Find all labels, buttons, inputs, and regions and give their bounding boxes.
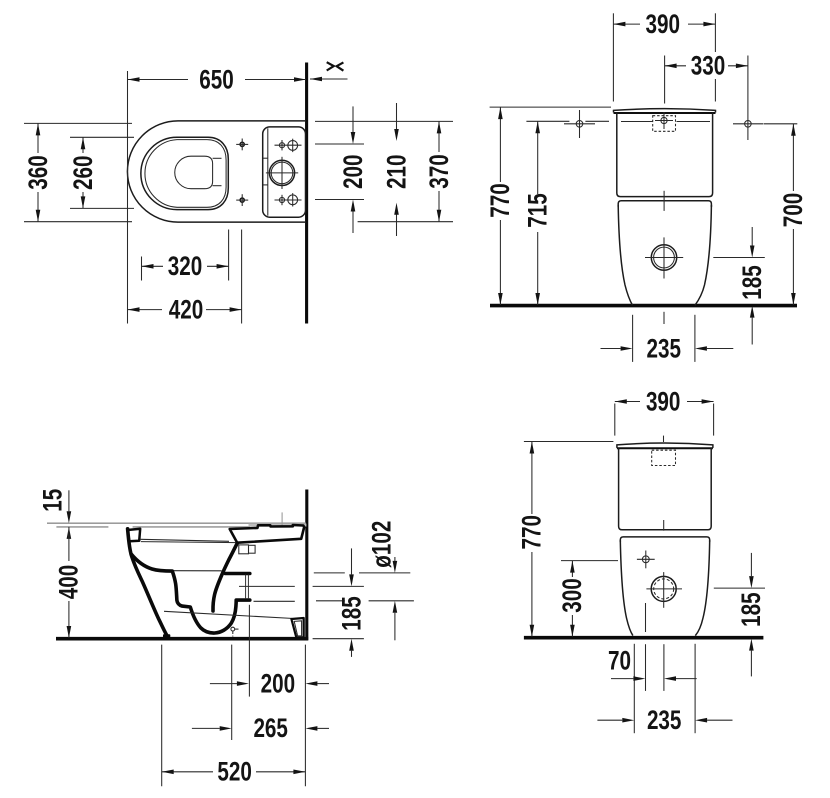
svg-text:715: 715 — [522, 193, 553, 228]
svg-text:770: 770 — [484, 183, 515, 218]
svg-text:390: 390 — [646, 385, 681, 416]
svg-text:370: 370 — [423, 154, 454, 189]
svg-text:260: 260 — [67, 156, 98, 191]
svg-text:420: 420 — [169, 293, 204, 324]
svg-text:ø102: ø102 — [366, 521, 397, 568]
svg-text:235: 235 — [647, 704, 682, 735]
svg-text:520: 520 — [217, 756, 252, 787]
svg-text:300: 300 — [556, 578, 587, 613]
svg-text:185: 185 — [335, 596, 366, 631]
svg-text:330: 330 — [691, 50, 726, 81]
svg-text:210: 210 — [380, 154, 411, 189]
svg-text:360: 360 — [22, 155, 53, 190]
svg-text:185: 185 — [736, 265, 767, 300]
svg-text:200: 200 — [337, 154, 368, 189]
svg-text:185: 185 — [735, 592, 766, 627]
svg-text:265: 265 — [253, 712, 288, 743]
svg-text:235: 235 — [647, 332, 682, 363]
svg-text:200: 200 — [261, 667, 296, 698]
svg-text:400: 400 — [53, 565, 84, 600]
svg-text:320: 320 — [168, 250, 203, 281]
svg-text:390: 390 — [646, 8, 681, 39]
svg-text:770: 770 — [516, 515, 547, 550]
svg-text:15: 15 — [37, 489, 68, 512]
svg-text:700: 700 — [777, 193, 808, 228]
svg-text:70: 70 — [608, 645, 631, 676]
svg-text:650: 650 — [199, 63, 234, 94]
